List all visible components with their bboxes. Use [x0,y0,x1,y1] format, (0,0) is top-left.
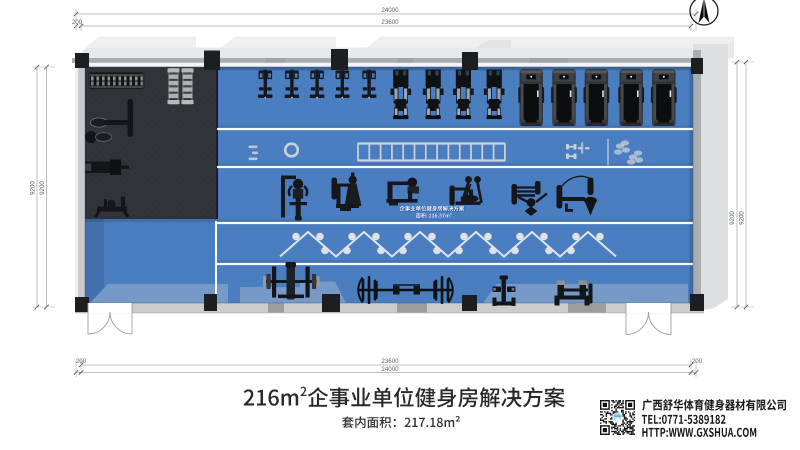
svg-text:23600: 23600 [381,19,399,26]
svg-text:9200: 9200 [739,211,746,225]
svg-text:23600: 23600 [381,358,399,365]
svg-text:9200: 9200 [39,181,46,195]
svg-text:24000: 24000 [381,366,399,373]
svg-text:200: 200 [76,358,87,365]
svg-text:9200: 9200 [729,211,736,225]
svg-text:24000: 24000 [381,7,399,14]
svg-text:9200: 9200 [30,181,37,195]
svg-text:200: 200 [72,19,83,26]
svg-text:200: 200 [692,358,703,365]
